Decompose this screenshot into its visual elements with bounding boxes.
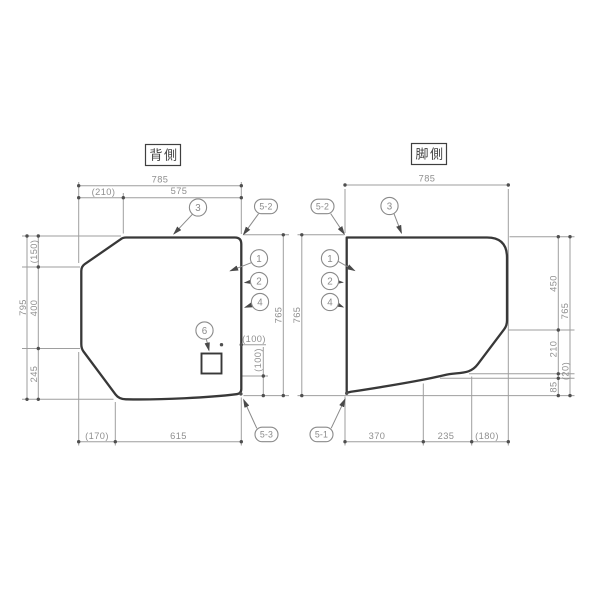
dim-foot-side-total: 765 — [560, 303, 570, 320]
balloon-5-2-back-label: 5-2 — [259, 202, 272, 212]
dim-back-top-main: 575 — [171, 186, 188, 196]
dim-foot-side-mid: 210 — [549, 341, 559, 358]
dim-back-bottom-main: 615 — [170, 431, 187, 441]
balloon-2-foot-label: 2 — [327, 277, 332, 288]
balloon-5-2-foot-label: 5-2 — [316, 202, 329, 212]
balloon-4-foot-label: 4 — [327, 298, 333, 309]
dim-foot-side-top: 450 — [549, 275, 559, 292]
dim-foot-side-step: (20) — [561, 362, 571, 380]
dim-back-side-bottom: 245 — [29, 366, 39, 383]
dim-back-hole-x: (100) — [242, 334, 266, 344]
foot-panel-label: 脚側 — [415, 147, 444, 162]
drawing-canvas: 背側 785 (210) 575 795 (150) 400 245 765 (… — [0, 0, 600, 600]
dim-back-side-total: 795 — [18, 299, 28, 316]
balloon-3-back-label: 3 — [195, 203, 201, 214]
balloon-5-1-foot-label: 5-1 — [315, 430, 328, 440]
dim-foot-top-total: 785 — [419, 174, 436, 184]
balloon-4-back-label: 4 — [257, 298, 263, 309]
technical-drawing-page: 背側 785 (210) 575 795 (150) 400 245 765 (… — [0, 0, 600, 600]
back-panel-title: 背側 — [146, 145, 181, 166]
dim-foot-bottom-mid: 235 — [438, 431, 455, 441]
dim-back-top-total: 785 — [152, 175, 169, 185]
dim-foot-side-bottom: 85 — [549, 381, 559, 392]
dim-back-side-mid: 400 — [29, 300, 39, 317]
dim-back-hole-y: (100) — [253, 348, 263, 372]
balloon-5-3-back-label: 5-3 — [260, 430, 273, 440]
dim-foot-height-left: 765 — [292, 307, 302, 324]
dim-back-top-offset: (210) — [92, 187, 116, 197]
balloon-1-back-label: 1 — [256, 254, 261, 265]
balloon-6-back-label: 6 — [202, 326, 208, 337]
foot-panel-outline — [347, 238, 507, 393]
back-panel-label: 背側 — [149, 148, 178, 163]
dim-back-side-top: (150) — [29, 240, 39, 264]
dim-foot-bottom-right: (180) — [475, 431, 499, 441]
foot-panel-title: 脚側 — [412, 144, 447, 165]
balloon-2-back-label: 2 — [256, 277, 261, 288]
back-panel-hole — [202, 354, 222, 374]
back-panel-outline — [81, 238, 241, 400]
balloon-1-foot-label: 1 — [327, 254, 332, 265]
dim-foot-bottom-left: 370 — [369, 431, 386, 441]
dim-back-bottom-offset: (170) — [85, 431, 109, 441]
dim-back-height-right: 765 — [274, 307, 284, 324]
balloon-3-foot-label: 3 — [387, 202, 393, 213]
